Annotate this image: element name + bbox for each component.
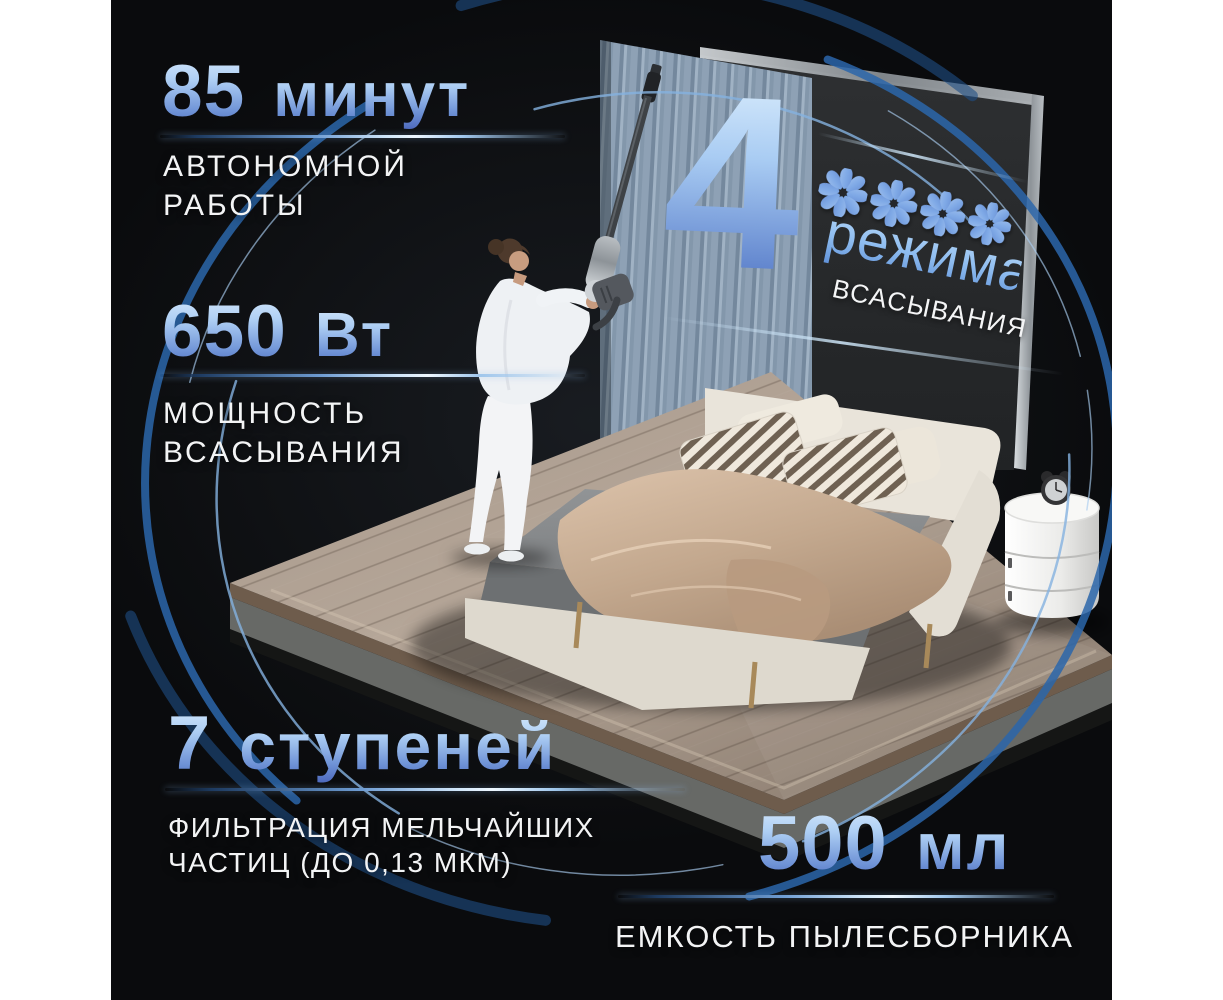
stat-label: АВТОНОМНОЙ РАБОТЫ — [163, 147, 408, 225]
stat-label: ФИЛЬТРАЦИЯ МЕЛЬЧАЙШИХ ЧАСТИЦ (ДО 0,13 МК… — [168, 810, 595, 880]
stat-label-line: МОЩНОСТЬ — [163, 394, 405, 433]
stat-value: 7 — [168, 700, 211, 787]
stat-value: 85 — [162, 50, 245, 133]
alarm-clock — [1041, 471, 1071, 505]
stat-battery-runtime: 85 минут — [162, 50, 470, 133]
stat-value: 500 — [758, 800, 888, 887]
divider — [165, 788, 685, 791]
stat-label-line: ЧАСТИЦ (ДО 0,13 МКМ) — [168, 845, 595, 880]
stat-label-line: РАБОТЫ — [163, 186, 408, 225]
stat-unit: ступеней — [239, 708, 556, 784]
stat-unit: мл — [916, 808, 1011, 884]
stat-label-line: АВТОНОМНОЙ — [163, 147, 408, 186]
product-infographic: 85 минут АВТОНОМНОЙ РАБОТЫ 650 Вт МОЩНОС… — [0, 0, 1223, 1000]
stat-filtration-stages: 7 ступеней — [168, 700, 556, 787]
stat-suction-power: 650 Вт — [162, 290, 393, 373]
stat-label: ЕМКОСТЬ ПЫЛЕСБОРНИКА — [615, 917, 1074, 956]
divider — [160, 374, 585, 377]
stat-dustbin-capacity: 500 мл — [758, 800, 1011, 887]
stat-label-line: ВСАСЫВАНИЯ — [163, 433, 405, 472]
divider — [160, 135, 565, 138]
stat-label-line: ФИЛЬТРАЦИЯ МЕЛЬЧАЙШИХ — [168, 810, 595, 845]
modes-count: 4 — [650, 57, 816, 310]
stat-value: 650 — [162, 290, 287, 373]
stat-unit: минут — [273, 60, 470, 131]
stat-label: МОЩНОСТЬ ВСАСЫВАНИЯ — [163, 394, 405, 472]
stat-unit: Вт — [315, 300, 393, 371]
divider — [618, 895, 1054, 898]
nightstand — [994, 493, 1110, 635]
stat-label-line: ЕМКОСТЬ ПЫЛЕСБОРНИКА — [615, 917, 1074, 956]
